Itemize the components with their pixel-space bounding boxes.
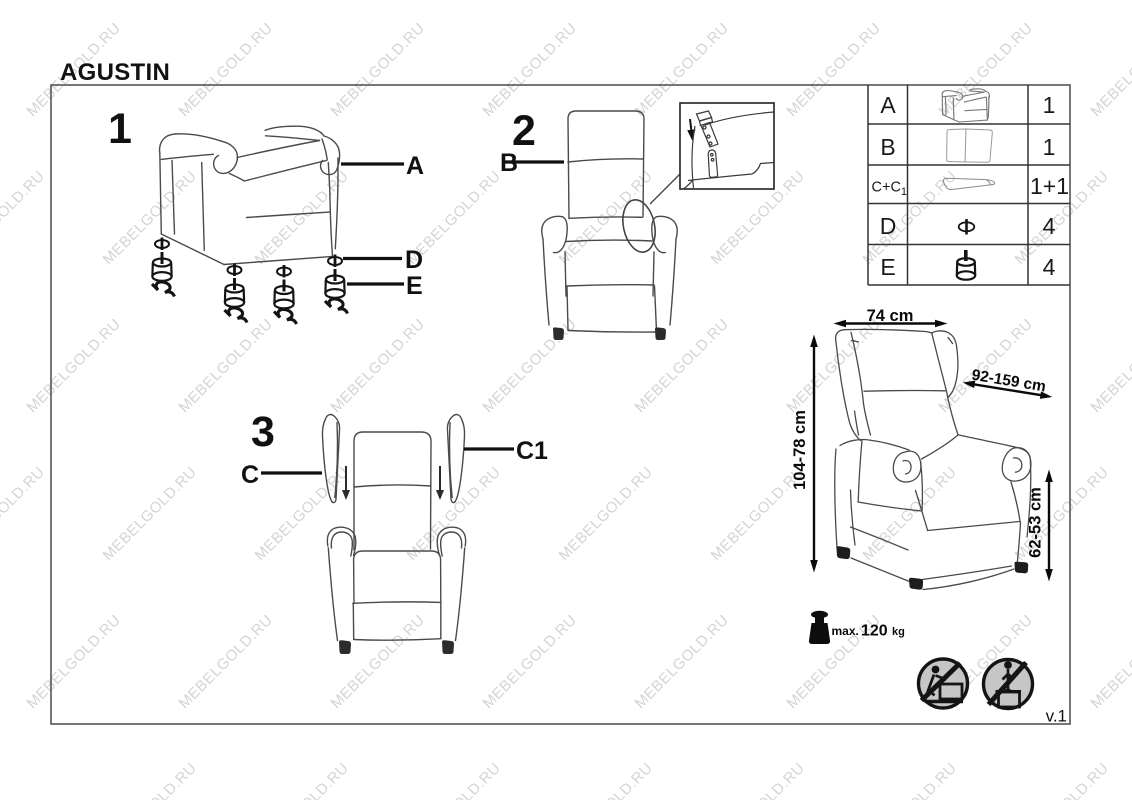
svg-text:2: 2 <box>512 107 536 155</box>
svg-text:MEBELGOLD.RU: MEBELGOLD.RU <box>404 464 505 565</box>
svg-text:max.: max. <box>832 624 859 638</box>
svg-text:MEBELGOLD.RU: MEBELGOLD.RU <box>328 20 429 121</box>
svg-text:MEBELGOLD.RU: MEBELGOLD.RU <box>784 20 885 121</box>
svg-text:4: 4 <box>1043 213 1056 239</box>
svg-text:MEBELGOLD.RU: MEBELGOLD.RU <box>176 612 277 713</box>
svg-text:MEBELGOLD.RU: MEBELGOLD.RU <box>556 760 657 800</box>
svg-text:A: A <box>406 152 424 180</box>
svg-text:74 cm: 74 cm <box>867 307 914 325</box>
svg-text:MEBELGOLD.RU: MEBELGOLD.RU <box>480 20 581 121</box>
svg-text:C1: C1 <box>516 437 548 465</box>
svg-text:MEBELGOLD.RU: MEBELGOLD.RU <box>176 316 277 417</box>
svg-text:92-159 cm: 92-159 cm <box>970 367 1047 396</box>
svg-text:1: 1 <box>1043 134 1056 160</box>
svg-text:v.1: v.1 <box>1046 707 1067 726</box>
svg-text:MEBELGOLD.RU: MEBELGOLD.RU <box>632 612 733 713</box>
svg-text:E: E <box>880 254 895 280</box>
svg-text:kg: kg <box>892 626 905 638</box>
svg-text:MEBELGOLD.RU: MEBELGOLD.RU <box>1088 316 1132 417</box>
svg-text:MEBELGOLD.RU: MEBELGOLD.RU <box>176 20 277 121</box>
svg-text:B: B <box>500 149 518 177</box>
svg-text:1+1: 1+1 <box>1030 173 1069 199</box>
svg-text:MEBELGOLD.RU: MEBELGOLD.RU <box>480 316 581 417</box>
svg-text:E: E <box>406 272 423 300</box>
svg-text:A: A <box>880 92 896 118</box>
svg-text:MEBELGOLD.RU: MEBELGOLD.RU <box>480 612 581 713</box>
svg-text:1: 1 <box>108 105 132 153</box>
svg-text:D: D <box>880 213 897 239</box>
svg-text:MEBELGOLD.RU: MEBELGOLD.RU <box>100 464 201 565</box>
svg-text:MEBELGOLD.RU: MEBELGOLD.RU <box>252 760 353 800</box>
svg-text:MEBELGOLD.RU: MEBELGOLD.RU <box>0 168 48 269</box>
svg-text:MEBELGOLD.RU: MEBELGOLD.RU <box>24 316 125 417</box>
svg-text:120: 120 <box>861 623 888 640</box>
svg-text:MEBELGOLD.RU: MEBELGOLD.RU <box>860 464 961 565</box>
svg-text:MEBELGOLD.RU: MEBELGOLD.RU <box>1012 760 1113 800</box>
svg-text:MEBELGOLD.RU: MEBELGOLD.RU <box>784 316 885 417</box>
svg-text:B: B <box>880 134 895 160</box>
svg-text:C+C1: C+C1 <box>872 180 908 199</box>
svg-text:MEBELGOLD.RU: MEBELGOLD.RU <box>100 168 201 269</box>
svg-text:MEBELGOLD.RU: MEBELGOLD.RU <box>936 316 1037 417</box>
svg-text:MEBELGOLD.RU: MEBELGOLD.RU <box>404 760 505 800</box>
svg-text:MEBELGOLD.RU: MEBELGOLD.RU <box>24 612 125 713</box>
svg-text:MEBELGOLD.RU: MEBELGOLD.RU <box>708 760 809 800</box>
svg-text:104-78 cm: 104-78 cm <box>791 410 809 490</box>
svg-text:MEBELGOLD.RU: MEBELGOLD.RU <box>936 20 1037 121</box>
svg-text:MEBELGOLD.RU: MEBELGOLD.RU <box>328 612 429 713</box>
svg-text:1: 1 <box>1043 92 1056 118</box>
svg-text:MEBELGOLD.RU: MEBELGOLD.RU <box>328 316 429 417</box>
svg-text:4: 4 <box>1043 254 1056 280</box>
svg-text:AGUSTIN: AGUSTIN <box>60 59 170 86</box>
svg-text:MEBELGOLD.RU: MEBELGOLD.RU <box>1088 612 1132 713</box>
svg-text:D: D <box>405 246 423 274</box>
svg-text:MEBELGOLD.RU: MEBELGOLD.RU <box>0 464 48 565</box>
svg-text:MEBELGOLD.RU: MEBELGOLD.RU <box>860 760 961 800</box>
svg-text:C: C <box>241 461 259 489</box>
svg-text:MEBELGOLD.RU: MEBELGOLD.RU <box>632 316 733 417</box>
svg-text:MEBELGOLD.RU: MEBELGOLD.RU <box>556 464 657 565</box>
svg-text:MEBELGOLD.RU: MEBELGOLD.RU <box>100 760 201 800</box>
svg-text:62-53 cm: 62-53 cm <box>1027 487 1045 558</box>
svg-text:3: 3 <box>251 408 275 456</box>
svg-text:MEBELGOLD.RU: MEBELGOLD.RU <box>1088 20 1132 121</box>
